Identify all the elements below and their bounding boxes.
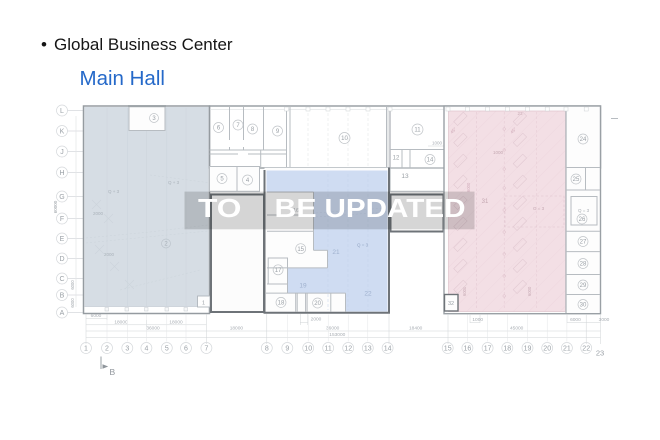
- svg-text:18000: 18000: [169, 319, 183, 325]
- svg-text:E: E: [60, 236, 65, 243]
- svg-text:6000: 6000: [570, 317, 581, 323]
- svg-text:13: 13: [401, 173, 409, 180]
- svg-text:Q + 3: Q + 3: [108, 189, 120, 194]
- svg-text:11: 11: [325, 346, 332, 353]
- svg-text:13: 13: [364, 346, 372, 353]
- svg-text:1: 1: [84, 346, 88, 353]
- svg-text:TO: TO: [198, 193, 242, 223]
- svg-text:16: 16: [464, 346, 472, 353]
- svg-text:12: 12: [393, 156, 400, 162]
- svg-text:22: 22: [364, 291, 372, 298]
- svg-text:J: J: [60, 149, 64, 156]
- svg-text:21: 21: [563, 346, 571, 353]
- svg-text:5: 5: [165, 346, 169, 353]
- svg-text:6: 6: [217, 126, 221, 132]
- svg-text:15: 15: [297, 247, 304, 253]
- svg-text:Q + 3: Q + 3: [168, 180, 180, 185]
- svg-text:Q = 3: Q = 3: [357, 243, 369, 248]
- svg-text:6000: 6000: [466, 182, 471, 192]
- svg-text:7: 7: [236, 123, 240, 129]
- svg-text:K: K: [60, 129, 65, 136]
- svg-text:20: 20: [543, 346, 551, 353]
- svg-text:H: H: [59, 170, 64, 177]
- svg-text:Q = 3: Q = 3: [578, 208, 590, 213]
- svg-text:31: 31: [482, 199, 489, 205]
- svg-text:20: 20: [314, 301, 321, 307]
- svg-text:F: F: [60, 216, 64, 223]
- svg-text:G: G: [59, 194, 64, 201]
- svg-text:17: 17: [275, 268, 282, 274]
- svg-text:11: 11: [414, 128, 421, 134]
- svg-text:18: 18: [278, 301, 285, 307]
- svg-text:14: 14: [427, 158, 434, 164]
- svg-text:45000: 45000: [510, 326, 524, 332]
- svg-text:1000: 1000: [493, 150, 504, 155]
- svg-text:1000: 1000: [472, 317, 483, 323]
- svg-text:18: 18: [503, 346, 511, 353]
- svg-text:10: 10: [304, 346, 312, 353]
- svg-text:12: 12: [344, 346, 352, 353]
- svg-text:30: 30: [580, 303, 587, 309]
- svg-text:3: 3: [125, 346, 129, 353]
- svg-text:7: 7: [204, 346, 208, 353]
- svg-text:D: D: [59, 256, 64, 263]
- svg-text:22: 22: [582, 346, 590, 353]
- svg-text:B: B: [60, 293, 65, 300]
- svg-text:21: 21: [332, 249, 340, 256]
- svg-text:6000: 6000: [70, 280, 75, 290]
- svg-text:28: 28: [580, 262, 587, 268]
- svg-text:2000: 2000: [311, 317, 322, 323]
- svg-text:23: 23: [596, 349, 604, 358]
- svg-text:2000: 2000: [104, 252, 115, 257]
- svg-text:1000: 1000: [432, 141, 443, 146]
- svg-text:36000: 36000: [146, 326, 160, 332]
- svg-text:B: B: [110, 367, 116, 377]
- svg-text:32: 32: [448, 301, 454, 307]
- svg-text:2: 2: [105, 346, 109, 353]
- svg-text:18400: 18400: [409, 326, 423, 332]
- svg-text:15: 15: [444, 346, 452, 353]
- svg-text:14: 14: [384, 346, 392, 353]
- svg-text:25: 25: [573, 177, 580, 183]
- svg-text:10: 10: [341, 136, 348, 142]
- svg-text:8: 8: [251, 127, 255, 133]
- svg-text:9: 9: [285, 346, 289, 353]
- svg-text:4: 4: [144, 346, 148, 353]
- svg-text:60000: 60000: [53, 200, 58, 213]
- svg-text:18000: 18000: [230, 326, 244, 332]
- svg-text:2000: 2000: [93, 211, 104, 216]
- svg-text:8: 8: [265, 346, 269, 353]
- svg-text:19: 19: [524, 346, 532, 353]
- svg-text:A: A: [60, 310, 65, 317]
- svg-text:6: 6: [184, 346, 188, 353]
- svg-text:29: 29: [580, 283, 587, 289]
- svg-text:6000: 6000: [462, 286, 467, 296]
- svg-text:26: 26: [579, 217, 586, 223]
- svg-text:UPDATED: UPDATED: [325, 193, 466, 223]
- svg-text:24: 24: [580, 137, 587, 143]
- svg-text:17: 17: [484, 346, 492, 353]
- svg-text:6000: 6000: [527, 286, 532, 296]
- svg-text:18000: 18000: [114, 319, 128, 325]
- svg-text:L: L: [60, 108, 64, 115]
- svg-text:6000: 6000: [70, 298, 75, 308]
- svg-text:C: C: [59, 276, 64, 283]
- svg-text:19: 19: [299, 283, 307, 290]
- svg-text:9: 9: [276, 129, 280, 135]
- svg-text:27: 27: [580, 240, 587, 246]
- svg-text:BE: BE: [275, 193, 317, 223]
- svg-text:153000: 153000: [329, 332, 345, 338]
- svg-text:6000: 6000: [91, 313, 102, 319]
- svg-text:1: 1: [202, 301, 205, 307]
- svg-text:23: 23: [517, 111, 523, 116]
- svg-text:G = 3: G = 3: [533, 206, 545, 211]
- svg-text:3000: 3000: [599, 317, 610, 323]
